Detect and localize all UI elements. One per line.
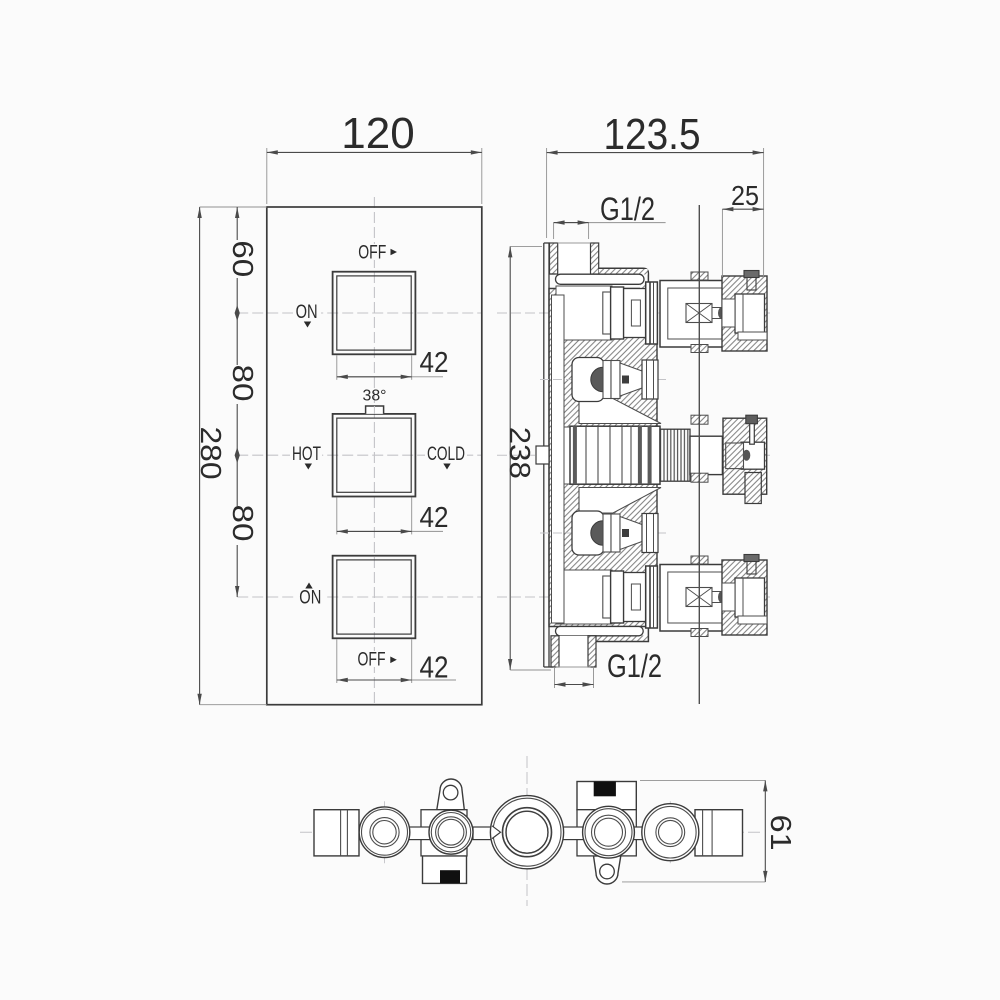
svg-text:42: 42 bbox=[420, 650, 449, 685]
svg-text:80: 80 bbox=[226, 365, 258, 402]
svg-text:280: 280 bbox=[194, 427, 226, 480]
svg-text:60: 60 bbox=[226, 240, 258, 277]
svg-text:120: 120 bbox=[341, 109, 414, 158]
svg-text:HOT: HOT bbox=[292, 444, 321, 465]
svg-text:OFF: OFF bbox=[358, 650, 386, 671]
svg-text:38°: 38° bbox=[363, 388, 387, 405]
svg-text:G1/2: G1/2 bbox=[600, 191, 655, 227]
svg-text:OFF: OFF bbox=[358, 243, 386, 264]
svg-text:ON: ON bbox=[299, 588, 321, 609]
svg-text:238: 238 bbox=[503, 427, 535, 479]
svg-text:123.5: 123.5 bbox=[604, 110, 701, 159]
svg-text:61: 61 bbox=[764, 815, 796, 851]
svg-text:42: 42 bbox=[420, 502, 449, 534]
svg-text:ON: ON bbox=[296, 302, 318, 323]
svg-text:42: 42 bbox=[420, 347, 449, 379]
svg-text:25: 25 bbox=[731, 180, 759, 211]
svg-text:G1/2: G1/2 bbox=[607, 648, 662, 684]
svg-text:80: 80 bbox=[226, 505, 258, 542]
svg-text:COLD: COLD bbox=[427, 444, 465, 465]
